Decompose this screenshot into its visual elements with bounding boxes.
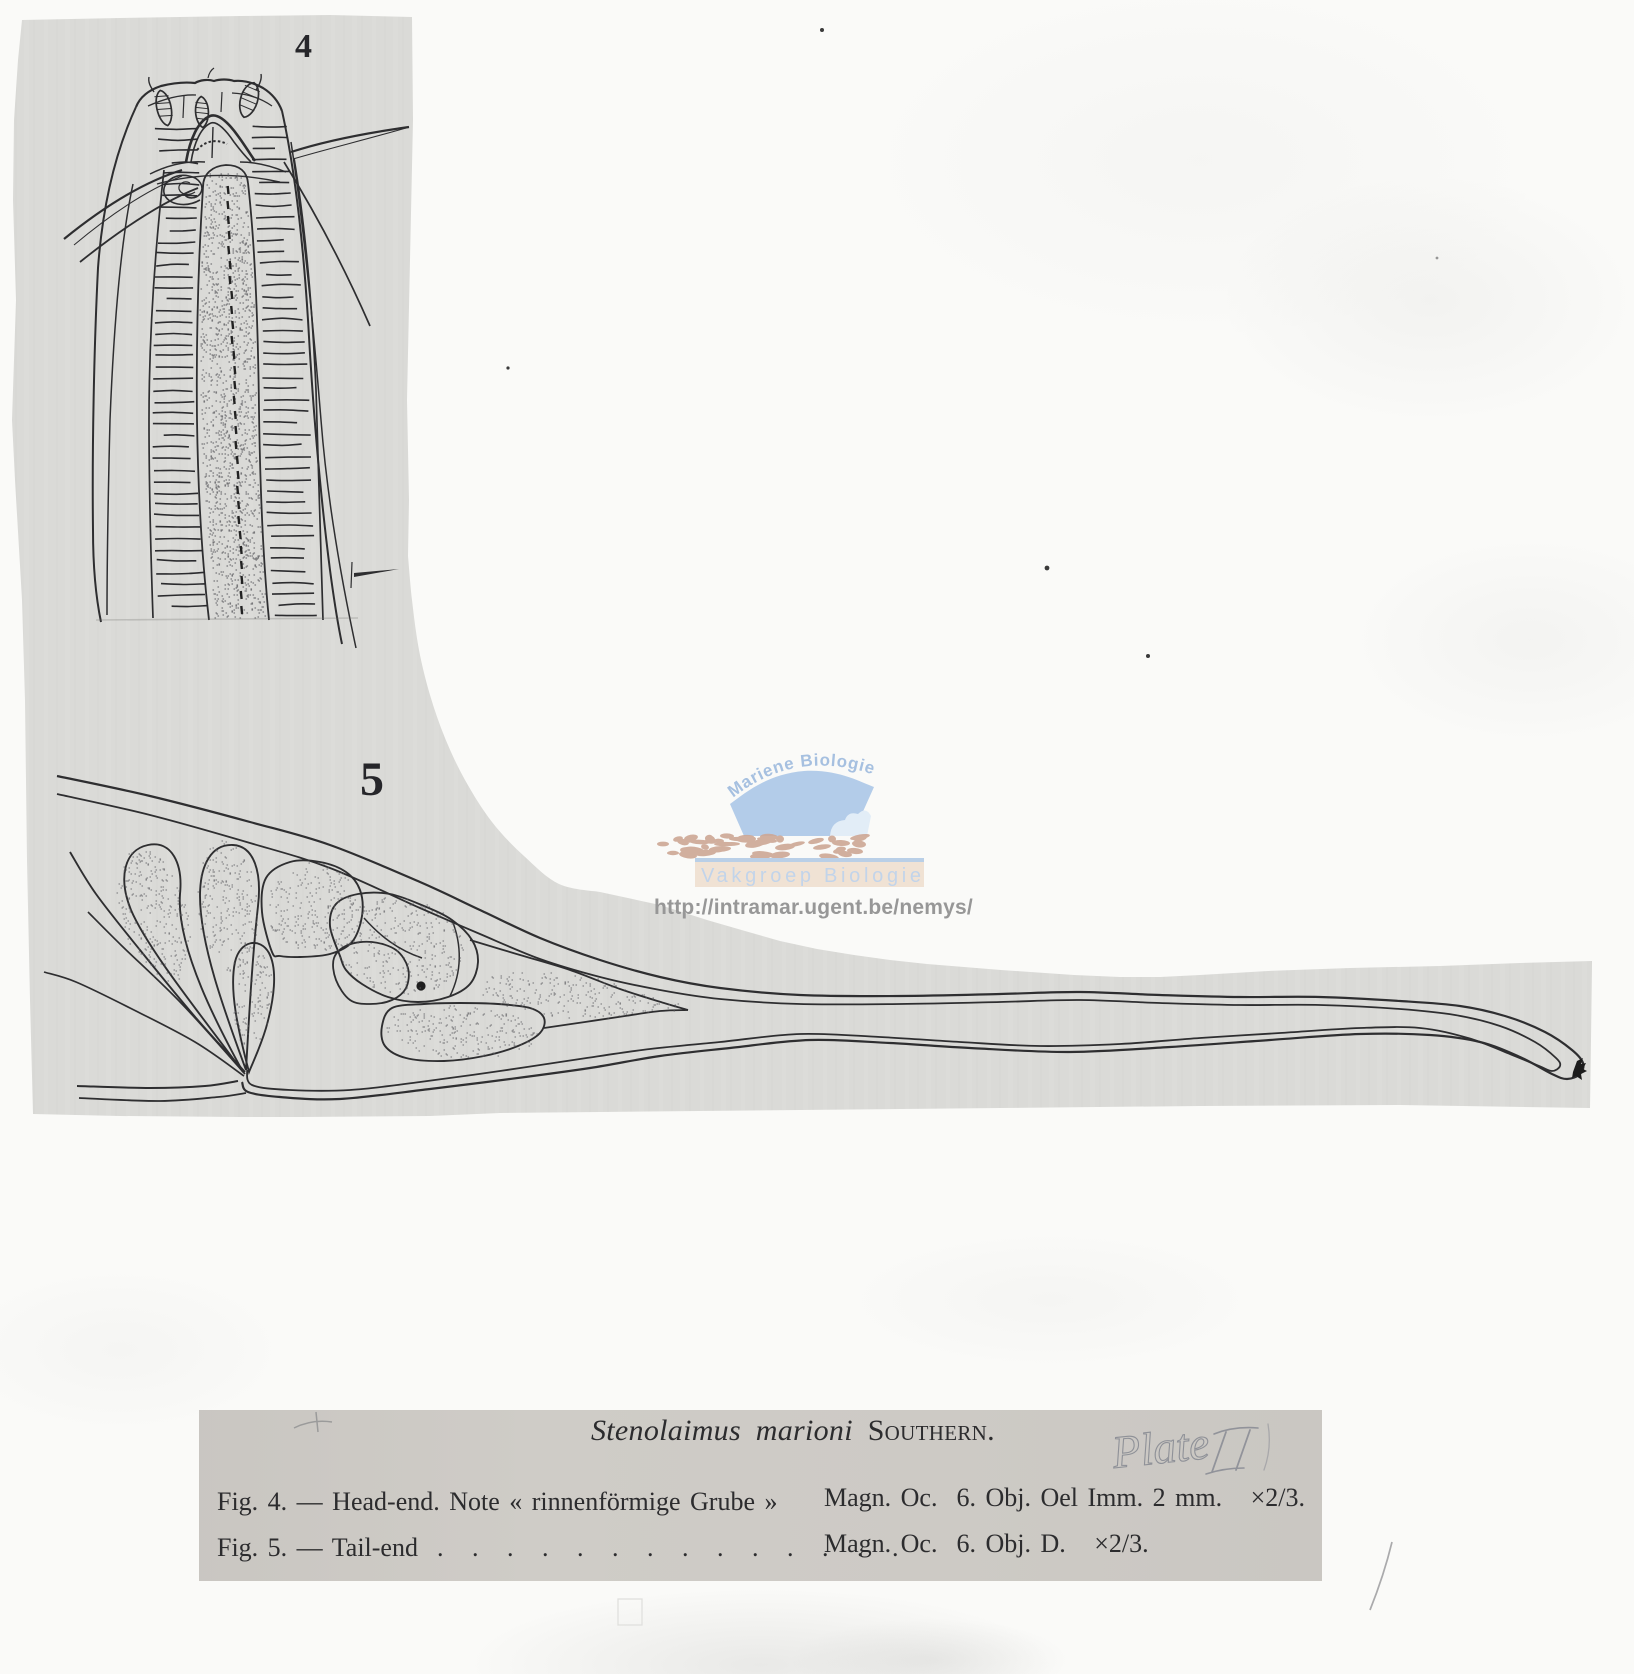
svg-text:Plate: Plate xyxy=(1109,1417,1212,1478)
svg-text:Vakgroep Biologie: Vakgroep Biologie xyxy=(701,865,925,887)
svg-text:4: 4 xyxy=(295,28,312,65)
svg-text:5: 5 xyxy=(360,753,384,806)
svg-text:http://intramar.ugent.be/nemys: http://intramar.ugent.be/nemys/ xyxy=(654,896,973,919)
